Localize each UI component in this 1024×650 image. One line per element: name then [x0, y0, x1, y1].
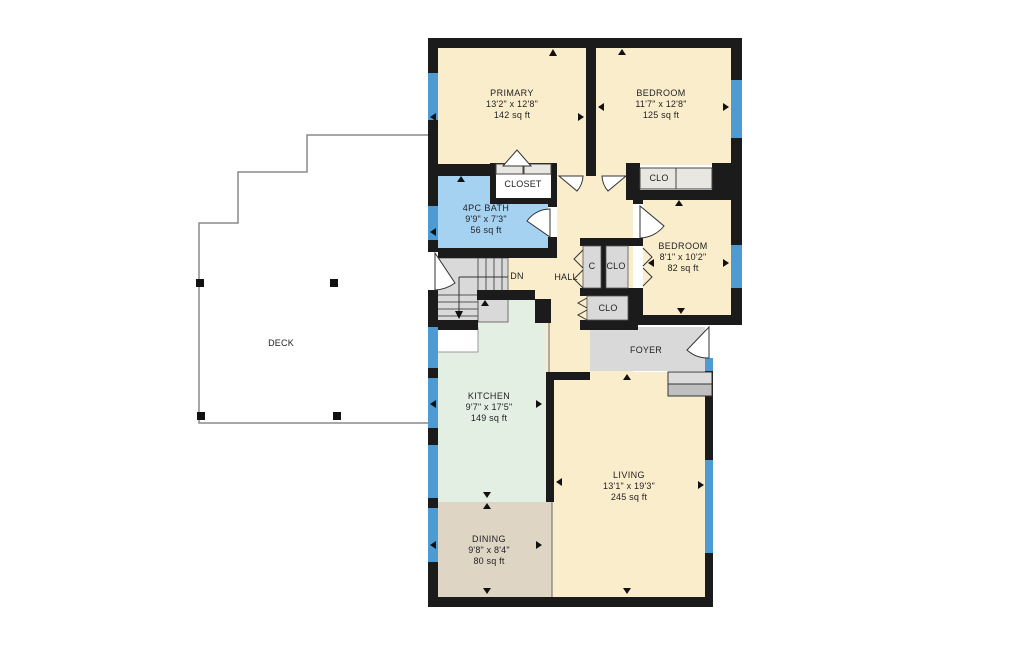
room-label-kitchen: KITCHEN 9'7" x 17'5" 149 sq ft: [466, 391, 513, 424]
label-stairs-down: DN: [510, 271, 523, 282]
label-c-hall: C: [589, 261, 596, 272]
room-name: BEDROOM: [635, 88, 686, 99]
room-area: 149 sq ft: [466, 413, 513, 424]
label-clo-hall-lower: CLO: [598, 303, 617, 314]
room-area: 245 sq ft: [603, 492, 655, 503]
label-closet-primary: CLOSET: [504, 179, 541, 190]
label-hall: HALL: [554, 272, 577, 283]
room-name: PRIMARY: [486, 88, 538, 99]
room-name: 4PC BATH: [463, 203, 510, 214]
room-label-bedroom1: BEDROOM 11'7" x 12'8" 125 sq ft: [635, 88, 686, 121]
room-name: BEDROOM: [658, 241, 707, 252]
room-dimensions: 9'8" x 8'4": [468, 545, 510, 556]
room-area: 80 sq ft: [468, 556, 510, 567]
room-dimensions: 13'2" x 12'8": [486, 99, 538, 110]
deck-outline: [196, 135, 428, 423]
room-label-bath: 4PC BATH 9'9" x 7'3" 56 sq ft: [463, 203, 510, 236]
room-area: 125 sq ft: [635, 110, 686, 121]
room-dimensions: 9'7" x 17'5": [466, 402, 513, 413]
room-area: 82 sq ft: [658, 263, 707, 274]
room-dimensions: 8'1" x 10'2": [658, 252, 707, 263]
label-foyer: FOYER: [630, 345, 662, 356]
label-deck: DECK: [268, 338, 294, 349]
floor-plan: PRIMARY 13'2" x 12'8" 142 sq ft BEDROOM …: [0, 0, 1024, 650]
room-area: 56 sq ft: [463, 225, 510, 236]
label-clo-hall: CLO: [606, 261, 625, 272]
room-label-dining: DINING 9'8" x 8'4" 80 sq ft: [468, 534, 510, 567]
room-dimensions: 9'9" x 7'3": [463, 214, 510, 225]
room-name: LIVING: [603, 470, 655, 481]
entry-steps: [668, 372, 712, 396]
room-label-bedroom2: BEDROOM 8'1" x 10'2" 82 sq ft: [658, 241, 707, 274]
room-label-primary: PRIMARY 13'2" x 12'8" 142 sq ft: [486, 88, 538, 121]
room-name: KITCHEN: [466, 391, 513, 402]
room-dimensions: 11'7" x 12'8": [635, 99, 686, 110]
room-label-living: LIVING 13'1" x 19'3" 245 sq ft: [603, 470, 655, 503]
room-name: DINING: [468, 534, 510, 545]
label-clo-bedroom1: CLO: [649, 173, 668, 184]
room-area: 142 sq ft: [486, 110, 538, 121]
room-dimensions: 13'1" x 19'3": [603, 481, 655, 492]
